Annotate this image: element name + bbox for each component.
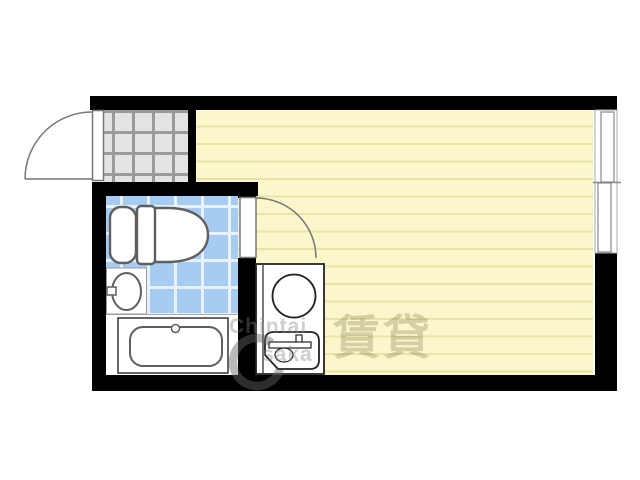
bathtub-drain-icon	[172, 325, 180, 333]
watermark-line1: Chintai	[229, 316, 307, 337]
watermark-kanji: 賃貸	[333, 314, 433, 361]
stove-burner-icon	[273, 275, 316, 318]
entrance-door-arc-icon	[25, 112, 92, 179]
entrance-door-leaf-icon	[93, 111, 104, 181]
interior-door-leaf-icon	[240, 198, 256, 258]
floor-plan: Chintai saka 賃貸	[0, 0, 640, 480]
interior-door-arc-icon	[256, 198, 316, 258]
toilet-seat-hinge-icon	[137, 206, 155, 264]
window-pane-upper-icon	[601, 112, 614, 182]
window-pane-lower-icon	[598, 183, 611, 252]
toilet-tank-icon	[110, 207, 136, 263]
washbasin-faucet-icon	[107, 287, 116, 295]
toilet-bowl-icon	[149, 208, 208, 262]
fixtures-layer	[0, 0, 640, 480]
watermark-line2: saka	[262, 344, 313, 365]
